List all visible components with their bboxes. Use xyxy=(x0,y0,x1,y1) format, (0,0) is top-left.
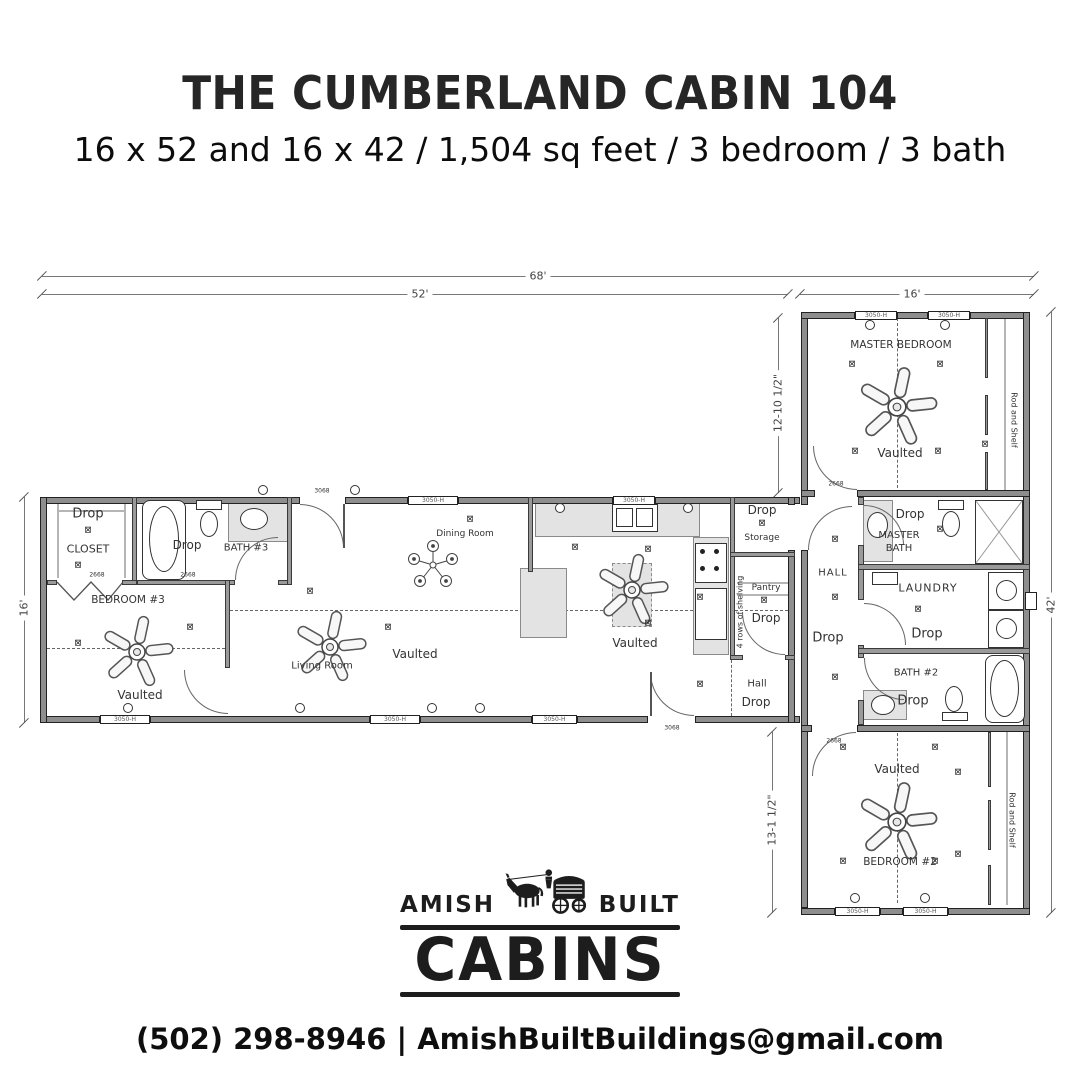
outlet-symbol: ⊠ xyxy=(84,527,92,536)
page-subtitle: 16 x 52 and 16 x 42 / 1,504 sq feet / 3 … xyxy=(0,130,1080,169)
outlet-symbol: ⊠ xyxy=(914,606,922,615)
light-symbol xyxy=(295,703,305,713)
bath3-drop-label: Drop xyxy=(173,538,202,552)
wall xyxy=(948,908,1030,915)
wall xyxy=(801,908,835,915)
bath2-drop-label: Drop xyxy=(897,694,928,709)
outlet-symbol: ⊠ xyxy=(644,546,652,555)
wall xyxy=(1023,312,1030,915)
light-symbol xyxy=(350,485,360,495)
outlet-symbol: ⊠ xyxy=(839,858,847,867)
flyer: THE CUMBERLAND CABIN 104 16 x 52 and 16 … xyxy=(0,0,1080,1080)
pantry-shelving-label: 4 rows of shelving xyxy=(736,576,745,649)
door-tag: 2668 xyxy=(826,738,841,745)
light-symbol xyxy=(940,320,950,330)
closet-wall xyxy=(988,865,991,905)
wall xyxy=(857,725,1030,732)
master-bath-drop-label: Drop xyxy=(896,507,925,521)
logo-word-built: BUILT xyxy=(599,892,680,924)
wall xyxy=(695,716,800,723)
wall xyxy=(858,497,864,505)
dim-main-width: 52' xyxy=(407,288,432,301)
sink-bowl xyxy=(636,508,653,527)
closet-shelf-line xyxy=(124,500,126,578)
toilet-bowl xyxy=(945,686,963,712)
living-vaulted-label: Vaulted xyxy=(392,647,437,661)
outlet-symbol: ⊠ xyxy=(954,769,962,778)
door-leaf xyxy=(343,504,345,548)
wall xyxy=(788,550,795,723)
bedroom2-closet-label: Rod and Shelf xyxy=(1008,792,1017,847)
outlet-symbol: ⊠ xyxy=(831,674,839,683)
light-symbol xyxy=(865,320,875,330)
wall xyxy=(801,312,808,505)
light-symbol xyxy=(555,503,565,513)
laundry-shelf xyxy=(872,572,898,585)
wing-hall-label: HALL xyxy=(818,568,848,579)
door-tag: 3068 xyxy=(314,488,329,495)
wall xyxy=(655,497,800,504)
wall xyxy=(730,552,795,557)
wall xyxy=(801,312,855,319)
light-symbol xyxy=(258,485,268,495)
closet-wall xyxy=(985,395,988,435)
wall xyxy=(345,497,408,504)
sink-bowl xyxy=(616,508,633,527)
wall xyxy=(858,700,864,725)
outlet-symbol: ⊠ xyxy=(696,594,704,603)
wall xyxy=(857,490,1030,497)
light-symbol xyxy=(920,893,930,903)
door-arc xyxy=(184,670,228,714)
wall xyxy=(150,716,370,723)
living-room-label: Living Room xyxy=(291,661,352,672)
ceiling-fan xyxy=(855,780,939,864)
door-tag: 2668 xyxy=(89,572,104,579)
wall xyxy=(730,497,735,660)
outlet-symbol: ⊠ xyxy=(306,588,314,597)
master-bedroom-label: MASTER BEDROOM xyxy=(850,339,951,351)
closet-wall xyxy=(985,452,988,490)
toilet-tank xyxy=(196,500,222,510)
wall xyxy=(528,497,533,572)
wall xyxy=(801,725,812,732)
outlet-symbol: ⊠ xyxy=(758,520,766,529)
burner xyxy=(714,549,719,554)
chandelier xyxy=(405,537,461,593)
outlet-symbol: ⊠ xyxy=(981,441,989,450)
outlet-symbol: ⊠ xyxy=(466,516,474,525)
window: 3050-H xyxy=(370,715,420,724)
page-title: THE CUMBERLAND CABIN 104 xyxy=(43,66,1037,120)
laundry-drop-label: Drop xyxy=(911,627,942,642)
contact-phone: (502) 298-8946 xyxy=(136,1022,386,1056)
light-symbol xyxy=(850,893,860,903)
outlet-symbol: ⊠ xyxy=(936,526,944,535)
toilet-tank xyxy=(942,712,968,721)
company-logo: AMISH xyxy=(400,858,680,998)
outlet-symbol: ⊠ xyxy=(839,744,847,753)
logo-name: CABINS xyxy=(400,930,680,993)
laundry-label: LAUNDRY xyxy=(898,582,957,595)
hall-label: Hall xyxy=(747,679,766,690)
light-symbol xyxy=(475,703,485,713)
wall xyxy=(40,497,47,723)
wall xyxy=(420,716,532,723)
wall xyxy=(40,716,100,723)
outlet-symbol: ⊠ xyxy=(954,851,962,860)
closet-wall xyxy=(985,318,988,378)
bedroom2-vaulted-label: Vaulted xyxy=(874,762,919,776)
wall xyxy=(880,908,903,915)
wall xyxy=(788,497,795,505)
wall xyxy=(577,716,648,723)
closet-drop-label: Drop xyxy=(72,507,103,522)
dining-room-label: Dining Room xyxy=(436,529,494,539)
toilet-bowl xyxy=(200,511,218,537)
outlet-symbol: ⊠ xyxy=(831,594,839,603)
wall xyxy=(858,564,1030,570)
dim-wing-lower: 13-1 1/2" xyxy=(766,790,779,849)
closet-wall xyxy=(988,732,991,787)
door-arc xyxy=(300,504,344,548)
area-divider xyxy=(731,660,732,716)
wall xyxy=(287,497,292,585)
bath3-label: BATH #3 xyxy=(224,543,268,554)
pantry-drop-label: Drop xyxy=(752,611,781,625)
door-tag: 2668 xyxy=(180,572,195,579)
outlet-symbol: ⊠ xyxy=(931,744,939,753)
outlet-symbol: ⊠ xyxy=(696,681,704,690)
outlet-symbol: ⊠ xyxy=(571,544,579,553)
dim-overall-width: 68' xyxy=(525,270,550,283)
outlet-symbol: ⊠ xyxy=(644,620,652,629)
sink xyxy=(240,508,268,530)
wall xyxy=(970,312,1030,319)
door-tag: 2668 xyxy=(828,481,843,488)
wall xyxy=(225,580,230,668)
outlet-symbol: ⊠ xyxy=(384,624,392,633)
dim-wing-upper: 12-10 1/2" xyxy=(772,370,785,436)
door-tag: 3068 xyxy=(664,725,679,732)
ceiling-fan xyxy=(292,609,368,685)
window: 3050-H xyxy=(408,496,458,505)
window: 3050-H xyxy=(855,311,897,320)
burner xyxy=(700,549,705,554)
window: 3050-H xyxy=(928,311,970,320)
master-closet-label: Rod and Shelf xyxy=(1010,392,1019,447)
wing-hall-drop-label: Drop xyxy=(812,631,843,646)
bath2-label: BATH #2 xyxy=(894,668,938,679)
ceiling-fan xyxy=(99,614,175,690)
outlet-symbol: ⊠ xyxy=(760,597,768,606)
outlet-symbol: ⊠ xyxy=(934,448,942,457)
logo-word-amish: AMISH xyxy=(400,892,495,924)
burner xyxy=(700,566,705,571)
light-symbol xyxy=(427,703,437,713)
window: 3050-H xyxy=(100,715,150,724)
storage-label: Storage xyxy=(744,533,779,543)
wall xyxy=(858,545,864,600)
closet-label: CLOSET xyxy=(67,543,110,556)
wall xyxy=(785,655,795,660)
door-arc xyxy=(864,603,906,645)
dim-main-depth: 16' xyxy=(18,595,31,620)
bathtub-basin xyxy=(990,660,1019,717)
wall xyxy=(897,312,928,319)
shower-glass xyxy=(975,500,1023,564)
closet-wall xyxy=(988,800,991,850)
contact-email: AmishBuiltBuildings@gmail.com xyxy=(417,1022,944,1056)
outlet-symbol: ⊠ xyxy=(848,361,856,370)
bedroom2-label: BEDROOM #2 xyxy=(863,856,937,868)
dim-wing-width: 16' xyxy=(899,288,924,301)
horse-wagon-icon xyxy=(501,858,593,924)
sink xyxy=(871,695,895,715)
kitchen-counter xyxy=(520,568,567,638)
ceiling-fan xyxy=(855,365,939,449)
master-vaulted-label: Vaulted xyxy=(877,446,922,460)
utility-box xyxy=(1025,592,1037,610)
light-symbol xyxy=(683,503,693,513)
wall xyxy=(132,497,137,585)
pantry-label: Pantry xyxy=(752,583,781,593)
door-arc xyxy=(808,506,852,550)
outlet-symbol: ⊠ xyxy=(74,640,82,649)
outlet-symbol: ⊠ xyxy=(831,536,839,545)
toilet-tank xyxy=(938,500,964,510)
window: 3050-H xyxy=(613,496,655,505)
closet-shelf-line xyxy=(57,500,59,578)
wall xyxy=(458,497,613,504)
washer-door xyxy=(996,580,1017,601)
bedroom3-vaulted-label: Vaulted xyxy=(117,688,162,702)
outlet-symbol: ⊠ xyxy=(851,448,859,457)
storage-drop-label: Drop xyxy=(748,503,777,517)
dim-wing-length: 42' xyxy=(1045,592,1058,617)
door-arc xyxy=(650,672,694,716)
bedroom3-label: BEDROOM #3 xyxy=(91,594,165,606)
closet-shelf-line xyxy=(1004,318,1006,490)
master-bath-label: MASTER BATH xyxy=(868,529,930,555)
wall xyxy=(730,655,743,660)
outlet-symbol: ⊠ xyxy=(936,361,944,370)
door-leaf xyxy=(650,672,652,716)
contact-separator: | xyxy=(397,1022,408,1056)
outlet-symbol: ⊠ xyxy=(74,562,82,571)
wall xyxy=(137,580,235,585)
burner xyxy=(714,566,719,571)
wall xyxy=(858,648,1030,654)
hall-drop-label: Drop xyxy=(742,695,771,709)
window: 3050-H xyxy=(903,907,948,916)
window: 3050-H xyxy=(835,907,880,916)
window: 3050-H xyxy=(532,715,577,724)
kitchen-vaulted-label: Vaulted xyxy=(612,636,657,650)
toilet-bowl xyxy=(942,511,960,537)
wall xyxy=(801,490,815,497)
ceiling-fan xyxy=(594,552,670,628)
light-symbol xyxy=(123,703,133,713)
contact-line: (502) 298-8946 | AmishBuiltBuildings@gma… xyxy=(0,1022,1080,1056)
outlet-symbol: ⊠ xyxy=(186,624,194,633)
dryer-door xyxy=(996,618,1017,639)
